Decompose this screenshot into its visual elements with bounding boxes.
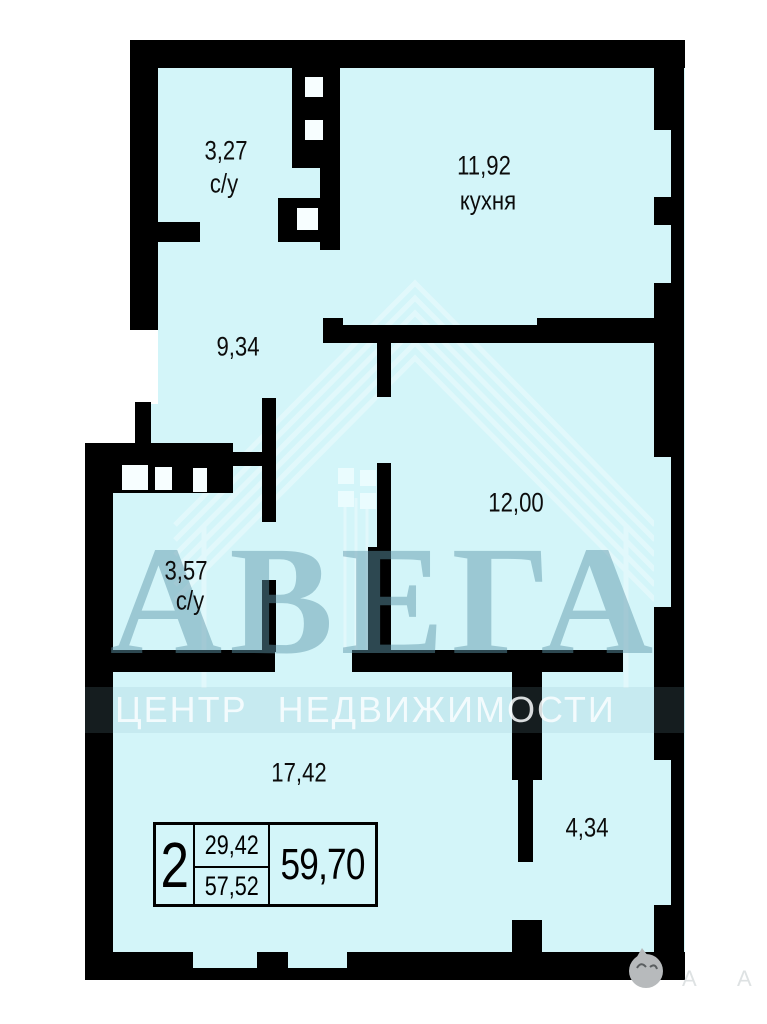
window bbox=[654, 760, 671, 905]
wall-segment bbox=[85, 952, 685, 980]
room-area-label-hallway: 9,34 bbox=[216, 332, 259, 363]
brand-watermark-tagline: ЦЕНТР НЕДВИЖИМОСТИ bbox=[115, 687, 616, 733]
area-total-value: 59,70 bbox=[280, 840, 364, 890]
window bbox=[288, 952, 347, 968]
wall-segment bbox=[135, 402, 151, 447]
room-area-label-wc-top: 3,27 bbox=[204, 136, 247, 167]
wall-segment bbox=[165, 452, 275, 466]
duct-opening bbox=[193, 468, 207, 492]
area-lower-value: 57,52 bbox=[205, 871, 259, 902]
info-box-area-upper-cell: 29,42 bbox=[195, 825, 267, 868]
wall-segment bbox=[262, 398, 276, 522]
wall-segment bbox=[320, 148, 340, 250]
corner-watermark-letter: А bbox=[737, 966, 752, 992]
rooms-count-value: 2 bbox=[160, 828, 188, 902]
room-area-label-bedroom: 12,00 bbox=[488, 488, 543, 519]
info-box-rooms-count-cell: 2 bbox=[156, 825, 195, 904]
window bbox=[654, 225, 671, 283]
window bbox=[193, 952, 257, 968]
wall-segment bbox=[518, 780, 533, 862]
floor-plan-page: АВЕГА ЦЕНТР НЕДВИЖИМОСТИ А А 3,27 с/у 11… bbox=[0, 0, 767, 1024]
duct-opening bbox=[297, 208, 318, 230]
area-upper-value: 29,42 bbox=[205, 830, 259, 861]
room-type-label-wc-bottom: с/у bbox=[176, 586, 204, 617]
apartment-info-box: 2 29,42 57,52 59,70 bbox=[153, 822, 378, 907]
wall-segment bbox=[537, 318, 654, 343]
brand-watermark-band: ЦЕНТР НЕДВИЖИМОСТИ bbox=[85, 687, 685, 733]
info-box-area-lower-cell: 57,52 bbox=[195, 868, 267, 904]
duct-opening bbox=[155, 467, 172, 490]
wall-segment bbox=[377, 343, 391, 397]
wall-segment bbox=[130, 222, 200, 242]
duct-opening bbox=[122, 465, 148, 490]
room-area-label-kitchen: 11,92 bbox=[457, 151, 511, 182]
room-type-label-kitchen: кухня bbox=[460, 186, 516, 217]
room-area-label-living: 17,42 bbox=[271, 758, 326, 789]
wall-segment bbox=[130, 40, 158, 330]
info-box-areas-cell: 29,42 57,52 bbox=[195, 825, 269, 904]
wall-segment bbox=[323, 318, 343, 343]
window bbox=[654, 130, 671, 197]
duct-opening bbox=[305, 77, 323, 97]
wall-segment bbox=[512, 920, 542, 954]
room-area-label-loggia: 4,34 bbox=[565, 813, 608, 844]
room-area-label-wc-bottom: 3,57 bbox=[164, 556, 207, 587]
wall-segment bbox=[130, 40, 685, 68]
info-box-total-area-cell: 59,70 bbox=[270, 825, 375, 904]
corner-watermark-letter: А bbox=[682, 966, 697, 992]
duct-opening bbox=[305, 120, 323, 140]
room-type-label-wc-top: с/у bbox=[210, 169, 238, 200]
